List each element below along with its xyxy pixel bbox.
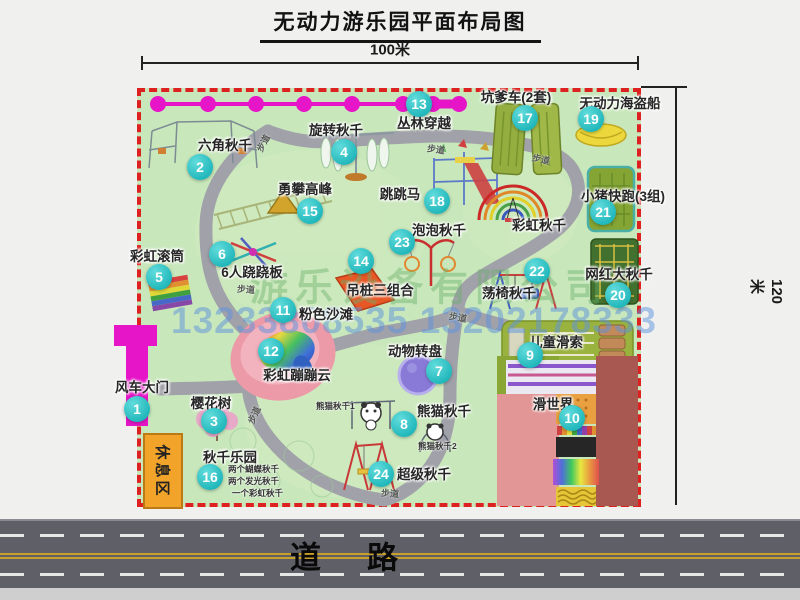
attraction-marker-13[interactable]: 13 — [406, 91, 432, 117]
attraction-label-7: 动物转盘 — [388, 340, 442, 360]
attraction-marker-10[interactable]: 10 — [559, 405, 585, 431]
attraction-label-2: 六角秋千 — [198, 134, 252, 154]
attraction-label-22: 荡椅秋千 — [482, 282, 536, 302]
extra-label-1: 彩虹秋千 — [512, 214, 566, 234]
attraction-label-12: 彩虹蹦蹦云 — [263, 364, 331, 384]
attraction-marker-1[interactable]: 1 — [124, 396, 150, 422]
attraction-marker-22[interactable]: 22 — [524, 258, 550, 284]
attraction-label-23: 泡泡秋千 — [412, 219, 466, 239]
footpath-label-4: 步道 — [237, 282, 256, 296]
attraction-marker-23[interactable]: 23 — [389, 229, 415, 255]
sub-label-5: 熊猫秋千2 — [418, 440, 457, 452]
attraction-marker-3[interactable]: 3 — [201, 408, 227, 434]
attraction-marker-14[interactable]: 14 — [348, 248, 374, 274]
footpath-label-5: 步道 — [448, 309, 468, 325]
attraction-marker-18[interactable]: 18 — [424, 188, 450, 214]
attraction-marker-24[interactable]: 24 — [368, 461, 394, 487]
attraction-marker-12[interactable]: 12 — [258, 338, 284, 364]
attraction-marker-2[interactable]: 2 — [187, 154, 213, 180]
attraction-marker-4[interactable]: 4 — [331, 139, 357, 165]
attraction-label-18: 跳跳马 — [380, 183, 421, 203]
attraction-label-20: 网红大秋千 — [585, 263, 653, 283]
attraction-label-17: 坑爹车(2套) — [481, 86, 552, 106]
attraction-label-11: 粉色沙滩 — [299, 303, 353, 323]
attraction-label-8: 熊猫秋千 — [417, 400, 471, 420]
footpath-label-2: 步道 — [426, 141, 446, 156]
attraction-label-5: 彩虹滚筒 — [130, 245, 184, 265]
attraction-marker-5[interactable]: 5 — [146, 264, 172, 290]
attraction-label-24: 超级秋千 — [397, 463, 451, 483]
attraction-marker-19[interactable]: 19 — [578, 106, 604, 132]
sub-label-4: 熊猫秋千1 — [316, 400, 355, 412]
attraction-label-4: 旋转秋千 — [309, 119, 363, 139]
attraction-marker-11[interactable]: 11 — [270, 297, 296, 323]
attraction-label-1: 风车大门 — [115, 376, 169, 396]
attraction-marker-21[interactable]: 21 — [590, 199, 616, 225]
attraction-marker-6[interactable]: 6 — [209, 241, 235, 267]
attraction-marker-17[interactable]: 17 — [512, 105, 538, 131]
attraction-marker-15[interactable]: 15 — [297, 198, 323, 224]
footpath-label-1: 步道 — [253, 132, 273, 154]
sub-label-3: 一个彩虹秋千 — [232, 487, 283, 499]
attraction-marker-9[interactable]: 9 — [517, 342, 543, 368]
attraction-marker-8[interactable]: 8 — [391, 411, 417, 437]
attraction-marker-16[interactable]: 16 — [197, 464, 223, 490]
attraction-label-14: 吊桩三组合 — [346, 279, 414, 299]
attraction-label-15: 勇攀高峰 — [278, 178, 332, 198]
sub-label-1: 两个蝴蝶秋千 — [228, 463, 279, 475]
attraction-marker-7[interactable]: 7 — [426, 358, 452, 384]
footpath-label-6: 步道 — [244, 404, 263, 426]
map-annotations: 风车大门1六角秋千2樱花树3旋转秋千4彩虹滚筒56人跷跷板6动物转盘7熊猫秋千8… — [0, 0, 800, 600]
footpath-label-3: 步道 — [531, 151, 551, 167]
attraction-label-6: 6人跷跷板 — [221, 261, 283, 281]
park-layout-map: 无动力游乐园平面布局图 100米 120米 — [0, 0, 800, 600]
attraction-marker-20[interactable]: 20 — [605, 282, 631, 308]
sub-label-2: 两个发光秋千 — [228, 475, 279, 487]
footpath-label-7: 步道 — [381, 486, 400, 500]
